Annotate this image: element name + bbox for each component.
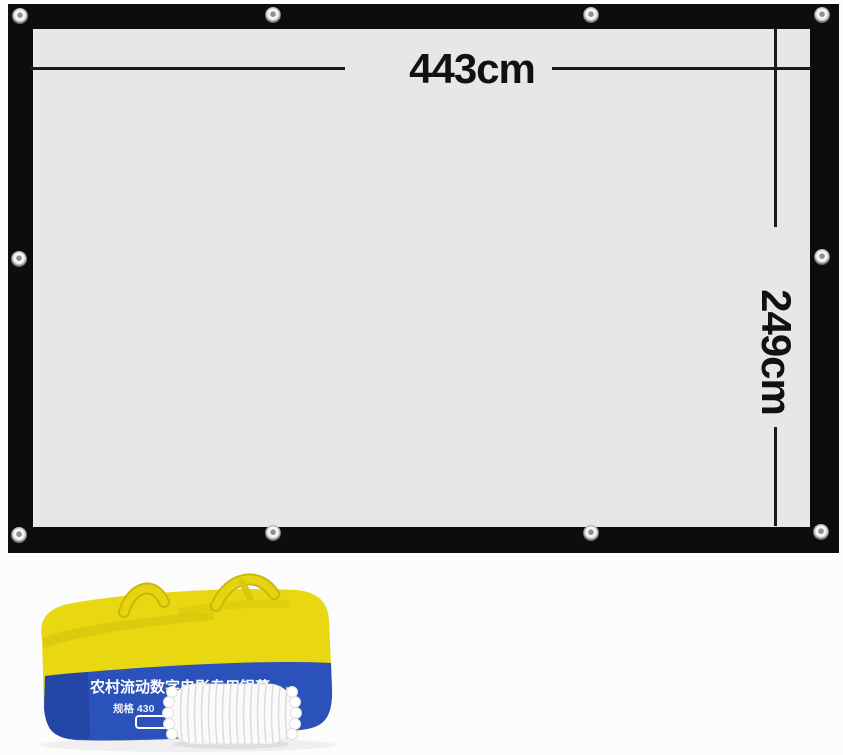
width-dimension-line bbox=[30, 67, 345, 70]
screen-surface bbox=[33, 29, 810, 527]
grommet-icon bbox=[583, 7, 599, 23]
bag-spec-text: 规格 430 bbox=[113, 702, 155, 715]
grommet-icon bbox=[813, 524, 829, 540]
height-dimension-line bbox=[774, 28, 777, 227]
height-dimension-line bbox=[774, 427, 777, 526]
grommet-icon bbox=[12, 8, 28, 24]
height-dimension-label: 249cm bbox=[755, 289, 797, 415]
grommet-icon bbox=[265, 525, 281, 541]
projector-screen: 443cm 249cm bbox=[8, 4, 839, 553]
grommet-icon bbox=[814, 249, 830, 265]
grommet-icon bbox=[11, 251, 27, 267]
grommet-icon bbox=[11, 527, 27, 543]
bag-blue-shade bbox=[44, 672, 90, 739]
grommet-icon bbox=[583, 525, 599, 541]
carry-bag-and-rope: 农村流动数字电影专用银幕 规格 430 cm bbox=[28, 568, 338, 755]
grommet-icon bbox=[265, 7, 281, 23]
width-dimension-label: 443cm bbox=[409, 48, 535, 90]
width-dimension-line bbox=[552, 67, 811, 70]
product-image: 443cm 249cm 农村流动数字电影专用银幕 规格 430 cm bbox=[0, 0, 843, 755]
grommet-icon bbox=[814, 7, 830, 23]
rope-coil-icon bbox=[163, 684, 302, 749]
